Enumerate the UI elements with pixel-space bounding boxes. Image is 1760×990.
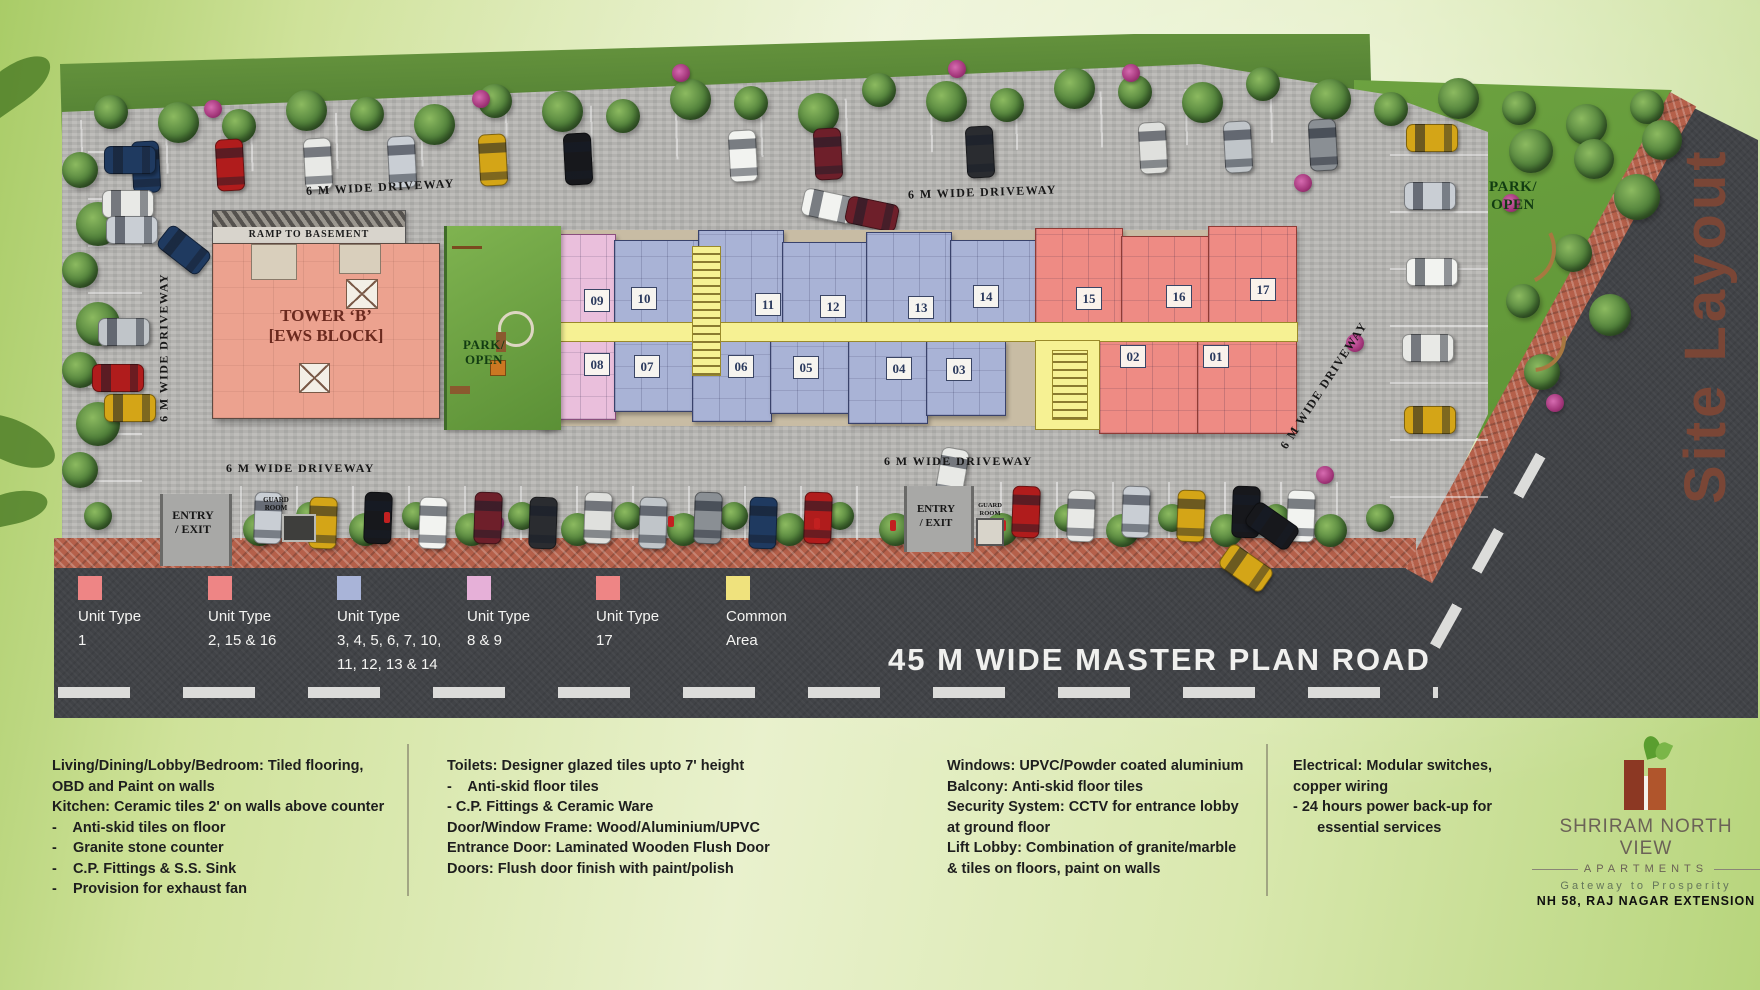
- car: [563, 132, 594, 185]
- tower-courtyard: [346, 279, 378, 309]
- flower-bush: [948, 60, 966, 78]
- car: [473, 492, 503, 545]
- unit-block-bottom: [1099, 340, 1199, 434]
- entry-exit-right-label: ENTRY / EXIT: [906, 502, 966, 530]
- tree: [62, 252, 98, 288]
- spec-line: copper wiring: [1293, 777, 1492, 798]
- car: [693, 492, 723, 545]
- unit-number-badge: 10: [631, 287, 657, 310]
- tower-label-line1: TOWER ‘B’: [213, 306, 439, 326]
- unit-number-badge: 03: [946, 358, 972, 381]
- car: [1066, 490, 1096, 543]
- spec-line: - C.P. Fittings & S.S. Sink: [52, 859, 384, 880]
- tree: [62, 452, 98, 488]
- spec-line: Living/Dining/Lobby/Bedroom: Tiled floor…: [52, 756, 384, 777]
- car: [583, 492, 613, 545]
- spec-line: - Provision for exhaust fan: [52, 879, 384, 900]
- spec-line: Kitchen: Ceramic tiles 2' on walls above…: [52, 797, 384, 818]
- brand-tagline: Gateway to Prosperity: [1532, 880, 1760, 892]
- flower-bush: [1294, 174, 1312, 192]
- tree: [158, 102, 199, 143]
- spec-column: Electrical: Modular switches,copper wiri…: [1293, 756, 1492, 838]
- unit-block-top: [1121, 236, 1210, 324]
- flower-bush: [672, 64, 690, 82]
- legend-swatch: [337, 576, 361, 600]
- park-left-line1: PARK/: [453, 337, 515, 352]
- guard-room-left-box: [282, 514, 316, 542]
- park-left-line2: OPEN: [453, 352, 515, 367]
- ramp-to-basement: RAMP TO BASEMENT: [212, 210, 406, 246]
- spec-line: at ground floor: [947, 818, 1243, 839]
- unit-number-badge: 02: [1120, 345, 1146, 368]
- unit-block-top: [1208, 226, 1297, 324]
- ramp-label: RAMP TO BASEMENT: [213, 227, 405, 243]
- spec-line: - 24 hours power back-up for: [1293, 797, 1492, 818]
- tree: [1614, 174, 1660, 220]
- tree: [414, 104, 455, 145]
- car: [102, 190, 154, 218]
- park-bench: [450, 386, 470, 394]
- legend-item: Unit Type1: [78, 576, 210, 653]
- tree: [734, 86, 768, 120]
- tree: [1566, 104, 1607, 145]
- tree: [1054, 68, 1095, 109]
- spec-line: Lift Lobby: Combination of granite/marbl…: [947, 838, 1243, 859]
- logo-tower-icon: [1648, 768, 1666, 810]
- unit-number-badge: 07: [634, 355, 660, 378]
- legend-label: Unit Type: [78, 605, 178, 629]
- hydrant: [890, 520, 896, 531]
- tree: [670, 79, 711, 120]
- legend-swatch: [467, 576, 491, 600]
- car: [104, 146, 156, 174]
- driveway-label-bottom-left: 6 M WIDE DRIVEWAY: [226, 461, 375, 476]
- unit-number-badge: 04: [886, 357, 912, 380]
- spec-divider: [1266, 744, 1268, 896]
- car: [1121, 486, 1151, 539]
- leaf-decoration: [0, 45, 59, 124]
- car: [1402, 334, 1454, 362]
- tree: [1246, 67, 1280, 101]
- spec-line: - Granite stone counter: [52, 838, 384, 859]
- legend-value: 17: [596, 629, 728, 653]
- legend-item: Unit Type8 & 9: [467, 576, 599, 653]
- car: [748, 497, 778, 550]
- legend-value: 1: [78, 629, 210, 653]
- unit-block-top: [950, 240, 1037, 324]
- driveway-label-bottom-center: 6 M WIDE DRIVEWAY: [884, 454, 1033, 469]
- entry-exit-left-label: ENTRY / EXIT: [162, 508, 224, 536]
- tree: [1438, 78, 1479, 119]
- park-right-line1: PARK/: [1478, 178, 1548, 196]
- car: [92, 364, 144, 392]
- flower-bush: [472, 90, 490, 108]
- ramp-hatching: [213, 211, 405, 227]
- car: [1138, 122, 1169, 175]
- driveway-label-left-vertical: 6 M WIDE DRIVEWAY: [157, 268, 172, 428]
- parking-stalls: [1390, 118, 1488, 498]
- unit-number-badge: 15: [1076, 287, 1102, 310]
- spec-line: Electrical: Modular switches,: [1293, 756, 1492, 777]
- unit-number-badge: 13: [908, 296, 934, 319]
- bush: [720, 502, 748, 530]
- spec-line: Door/Window Frame: Wood/Aluminium/UPVC: [447, 818, 770, 839]
- tree: [1502, 91, 1536, 125]
- car: [1404, 182, 1456, 210]
- legend-value: 3, 4, 5, 6, 7, 10, 11, 12, 13 & 14: [337, 629, 469, 677]
- tree: [94, 95, 128, 129]
- car: [528, 497, 558, 550]
- car: [1176, 490, 1206, 543]
- brand-location: NH 58, RAJ NAGAR EXTENSION: [1532, 894, 1760, 908]
- spec-column: Toilets: Designer glazed tiles upto 7' h…: [447, 756, 770, 879]
- car: [104, 394, 156, 422]
- legend-label: Unit Type: [337, 605, 437, 629]
- unit-block-top: [614, 240, 700, 324]
- legend-label: Common Area: [726, 605, 826, 653]
- car: [1406, 124, 1458, 152]
- tree: [1589, 294, 1631, 336]
- flower-bush: [1316, 466, 1334, 484]
- tree: [1554, 234, 1592, 272]
- car: [813, 128, 844, 181]
- car: [638, 497, 668, 550]
- spec-line: Windows: UPVC/Powder coated aluminium: [947, 756, 1243, 777]
- spec-line: & tiles on floors, paint on walls: [947, 859, 1243, 880]
- legend-value: 8 & 9: [467, 629, 599, 653]
- tower-recess: [251, 244, 297, 280]
- legend-label: Unit Type: [467, 605, 567, 629]
- hydrant: [384, 512, 390, 523]
- spec-line: Toilets: Designer glazed tiles upto 7' h…: [447, 756, 770, 777]
- unit-number-badge: 09: [584, 289, 610, 312]
- spec-line: essential services: [1293, 818, 1492, 839]
- entry-right-line2: / EXIT: [906, 516, 966, 530]
- guard-right-line1: GUARD: [970, 502, 1010, 510]
- spec-column: Living/Dining/Lobby/Bedroom: Tiled floor…: [52, 756, 384, 900]
- flower-bush: [204, 100, 222, 118]
- brand-category: APARTMENTS: [1584, 863, 1708, 875]
- playground-swing: [452, 246, 482, 249]
- tree: [1374, 92, 1408, 126]
- road-lane-dashes: [58, 687, 1438, 698]
- legend-swatch: [726, 576, 750, 600]
- flower-bush: [1546, 394, 1564, 412]
- guard-right-line2: ROOM: [970, 510, 1010, 518]
- unit-block-bottom: [553, 340, 616, 420]
- tree: [1574, 139, 1614, 179]
- legend-item: Unit Type17: [596, 576, 728, 653]
- car: [728, 129, 759, 182]
- unit-number-badge: 12: [820, 295, 846, 318]
- spec-divider: [407, 744, 409, 896]
- car: [418, 497, 448, 550]
- staircase-common: [1052, 350, 1088, 420]
- car: [965, 125, 996, 178]
- entry-right-line1: ENTRY: [906, 502, 966, 516]
- car: [1223, 120, 1254, 173]
- hydrant: [814, 518, 820, 529]
- spec-line: Entrance Door: Laminated Wooden Flush Do…: [447, 838, 770, 859]
- park-open-left-label: PARK/ OPEN: [453, 337, 515, 367]
- logo-gap: [1644, 776, 1648, 810]
- leaf-decoration: [0, 485, 51, 531]
- legend-label: Unit Type: [596, 605, 696, 629]
- logo-tower-icon: [1624, 760, 1644, 810]
- tree: [606, 99, 640, 133]
- unit-number-badge: 08: [584, 353, 610, 376]
- car: [106, 216, 158, 244]
- unit-block-bottom: [848, 340, 928, 424]
- car: [1308, 119, 1339, 172]
- staircase-common: [692, 246, 721, 376]
- road-name-label: 45 M WIDE MASTER PLAN ROAD: [888, 642, 1431, 678]
- legend-swatch: [596, 576, 620, 600]
- tree: [926, 81, 967, 122]
- car: [98, 318, 150, 346]
- bush: [614, 502, 642, 530]
- legend-item: Common Area: [726, 576, 858, 653]
- bush: [1314, 514, 1347, 547]
- spec-line: Doors: Flush door finish with paint/poli…: [447, 859, 770, 880]
- brand-logo-icon: [1618, 736, 1674, 812]
- tree: [1509, 129, 1553, 173]
- entry-left-line1: ENTRY: [162, 508, 224, 522]
- entry-left-line2: / EXIT: [162, 522, 224, 536]
- unit-number-badge: 16: [1166, 285, 1192, 308]
- flower-bush: [1122, 64, 1140, 82]
- bush: [84, 502, 112, 530]
- page-title: Site Layout: [1672, 84, 1739, 504]
- corridor-common-area: [560, 322, 1298, 342]
- spec-line: Security System: CCTV for entrance lobby: [947, 797, 1243, 818]
- bush: [773, 513, 806, 546]
- legend-swatch: [208, 576, 232, 600]
- tower-label-line2: [EWS BLOCK]: [213, 326, 439, 346]
- unit-number-badge: 14: [973, 285, 999, 308]
- guard-left-line1: GUARD: [254, 496, 298, 504]
- car: [1406, 258, 1458, 286]
- car: [478, 134, 509, 187]
- guard-room-right-label: GUARD ROOM: [970, 502, 1010, 518]
- tower-recess: [339, 244, 381, 274]
- tower-b-ews-block: TOWER ‘B’ [EWS BLOCK]: [212, 243, 440, 419]
- spec-line: Balcony: Anti-skid floor tiles: [947, 777, 1243, 798]
- legend-label: Unit Type: [208, 605, 308, 629]
- unit-number-badge: 11: [755, 293, 781, 316]
- legend-value: 2, 15 & 16: [208, 629, 340, 653]
- hydrant: [668, 516, 674, 527]
- tree: [286, 90, 327, 131]
- unit-number-badge: 05: [793, 356, 819, 379]
- car: [1404, 406, 1456, 434]
- unit-number-badge: 17: [1250, 278, 1276, 301]
- brand-block: SHRIRAM NORTH VIEW APARTMENTS Gateway to…: [1532, 736, 1760, 908]
- spec-line: - Anti-skid floor tiles: [447, 777, 770, 798]
- legend-swatch: [78, 576, 102, 600]
- spec-line: - C.P. Fittings & Ceramic Ware: [447, 797, 770, 818]
- legend-item: Unit Type3, 4, 5, 6, 7, 10, 11, 12, 13 &…: [337, 576, 469, 677]
- park-open-right-label: PARK/ OPEN: [1478, 178, 1548, 214]
- spec-column: Windows: UPVC/Powder coated aluminiumBal…: [947, 756, 1243, 879]
- tree: [1630, 90, 1664, 124]
- unit-number-badge: 01: [1203, 345, 1229, 368]
- unit-number-badge: 06: [728, 355, 754, 378]
- car: [1011, 486, 1041, 539]
- site-layout-page: 0910111213141516170807060504030201 RAMP …: [0, 0, 1760, 990]
- tree: [990, 88, 1024, 122]
- spec-line: OBD and Paint on walls: [52, 777, 384, 798]
- guard-room-right-box: [976, 518, 1004, 546]
- spec-line: - Anti-skid tiles on floor: [52, 818, 384, 839]
- guard-room-left-label: GUARD ROOM: [254, 496, 298, 512]
- legend-item: Unit Type2, 15 & 16: [208, 576, 340, 653]
- tree: [62, 152, 98, 188]
- tower-courtyard: [299, 363, 330, 393]
- tower-label: TOWER ‘B’ [EWS BLOCK]: [213, 306, 439, 346]
- guard-left-line2: ROOM: [254, 504, 298, 512]
- brand-name: SHRIRAM NORTH VIEW: [1532, 816, 1760, 860]
- car: [215, 138, 246, 191]
- tree: [350, 97, 384, 131]
- bush: [1366, 504, 1394, 532]
